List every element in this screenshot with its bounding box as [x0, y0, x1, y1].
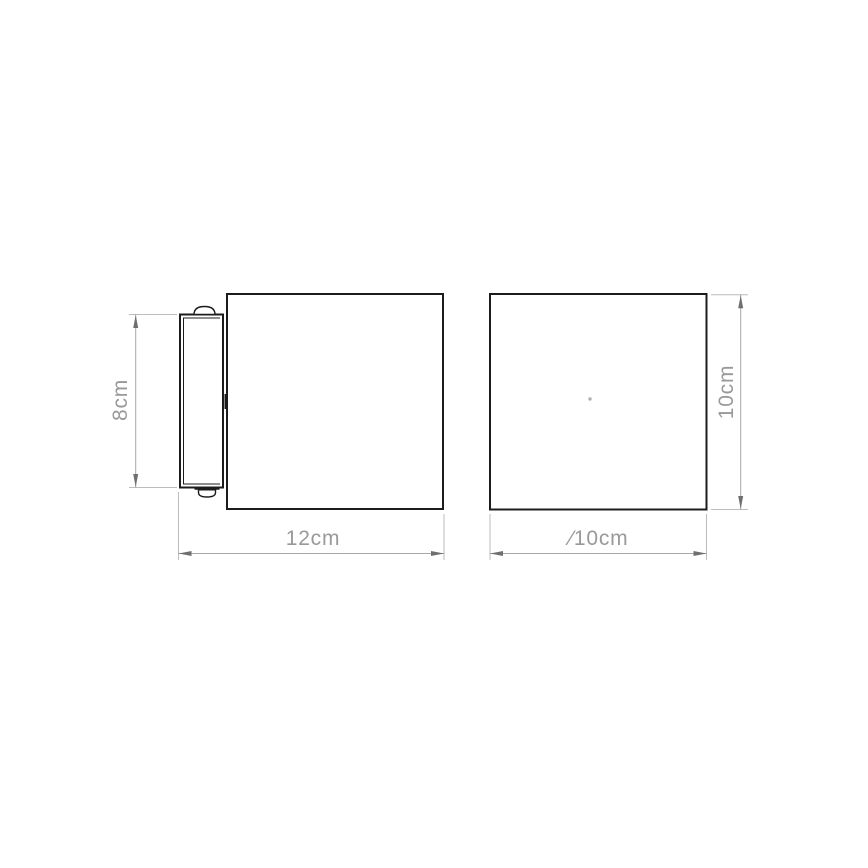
- arrow-up-icon: [738, 295, 743, 308]
- wall-plate-inner-line: [184, 318, 221, 484]
- arrow-down-icon: [133, 474, 138, 487]
- arrow-right-icon: [431, 551, 444, 556]
- bottom-mounting-screw: [195, 489, 220, 497]
- arrow-left-icon: [490, 551, 503, 556]
- screw-cap: [199, 490, 216, 497]
- arrow-left-icon: [179, 551, 192, 556]
- side-view-height-dimension: [129, 315, 177, 488]
- front-view: [490, 294, 707, 510]
- fixture-body-side: [227, 294, 443, 509]
- arrow-down-icon: [738, 496, 743, 509]
- side-view-width-dimension-label: 12cm: [286, 527, 341, 551]
- front-view-diameter-dimension-label: ∕10cm: [570, 527, 629, 551]
- center-mark: [588, 397, 591, 400]
- side-view: [180, 294, 443, 509]
- front-view-height-dimension-label: 10cm: [715, 365, 739, 420]
- top-mounting-screw: [194, 307, 215, 315]
- side-view-height-dimension-label: 8cm: [109, 379, 133, 421]
- fixture-body-front: [490, 294, 707, 510]
- cable-notch: [225, 394, 228, 409]
- dimension-drawing: [0, 0, 868, 868]
- arrow-right-icon: [694, 551, 707, 556]
- arrow-up-icon: [133, 315, 138, 328]
- wall-plate: [180, 315, 223, 488]
- technical-drawing-canvas: 8cm 12cm 10cm ∕10cm: [0, 0, 868, 868]
